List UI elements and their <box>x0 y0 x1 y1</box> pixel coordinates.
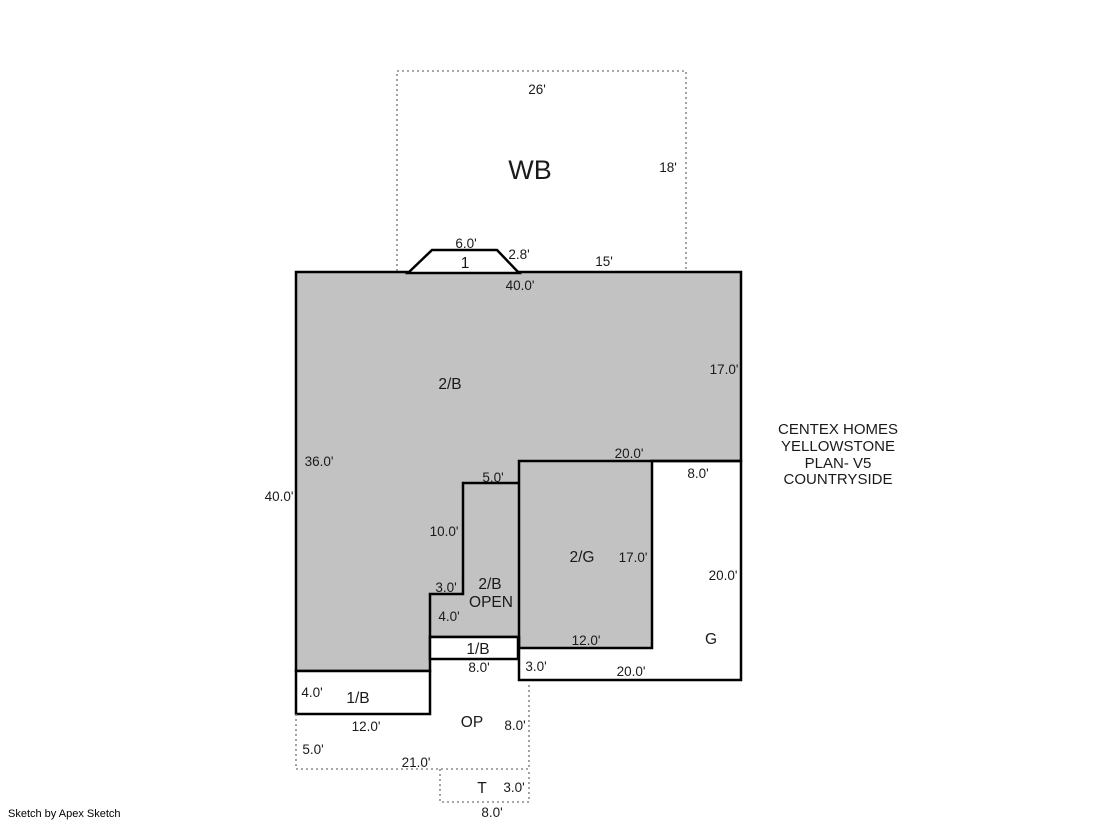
open-area-label-line1: 2/B <box>478 576 501 593</box>
terrace-dim-bottom: 8.0' <box>481 805 502 820</box>
garage-area-label: G <box>705 631 717 648</box>
upper-garage-area-label: 2/G <box>570 549 595 566</box>
floorplan-sketch: 26' WB 18' 6.0' 1 2.8' 15' 40.0' 2/B 17.… <box>0 0 1119 821</box>
lower-1b-area-label: 1/B <box>346 690 369 707</box>
plan-annotation-line1: CENTEX HOMES <box>778 421 898 438</box>
open-dim-step-h: 3.0' <box>435 580 456 595</box>
garage-dim-bottom: 20.0' <box>617 664 646 679</box>
main-dim-top-right: 15' <box>595 254 613 269</box>
terrace-dim-right: 3.0' <box>503 780 524 795</box>
stoop-area-label: 1 <box>461 255 470 272</box>
main-area-label: 2/B <box>438 376 461 393</box>
strip-1b-area-label: 1/B <box>466 641 489 658</box>
wb-area-label: WB <box>508 155 552 185</box>
porch-dim-right: 8.0' <box>504 718 525 733</box>
lower-1b-dim-left: 4.0' <box>301 685 322 700</box>
upper-garage-dim-bottom: 12.0' <box>572 633 601 648</box>
open-area-label-line2: OPEN <box>469 594 513 611</box>
garage-dim-left: 3.0' <box>525 659 546 674</box>
floorplan-canvas: 26' WB 18' 6.0' 1 2.8' 15' 40.0' 2/B 17.… <box>0 0 1119 821</box>
wb-dim-right: 18' <box>659 160 677 175</box>
main-dim-right: 17.0' <box>710 362 739 377</box>
main-dim-top: 40.0' <box>506 278 535 293</box>
porch-area-label: OP <box>461 714 483 731</box>
main-dim-left-outer: 40.0' <box>265 489 294 504</box>
open-dim-top: 5.0' <box>482 470 503 485</box>
sketch-credit: Sketch by Apex Sketch <box>8 808 121 820</box>
main-dim-left-inner: 36.0' <box>305 454 334 469</box>
garage-dim-right: 20.0' <box>709 568 738 583</box>
plan-annotation-line2: YELLOWSTONE <box>781 438 895 455</box>
open-dim-step-v: 4.0' <box>438 609 459 624</box>
wb-dim-top: 26' <box>528 82 546 97</box>
stoop-dim-top: 6.0' <box>455 236 476 251</box>
garage-dim-top: 8.0' <box>687 466 708 481</box>
plan-annotation-line3: PLAN- V5 <box>805 455 872 472</box>
terrace-area-label: T <box>477 780 487 797</box>
lower-1b-dim-bottom: 12.0' <box>352 719 381 734</box>
porch-dim-left: 5.0' <box>302 742 323 757</box>
plan-annotation-line4: COUNTRYSIDE <box>784 471 893 488</box>
upper-garage-dim-top: 20.0' <box>615 446 644 461</box>
porch-dim-bottom: 21.0' <box>402 755 431 770</box>
upper-garage-dim-right: 17.0' <box>619 550 648 565</box>
stoop-dim-slope: 2.8' <box>508 247 529 262</box>
open-dim-left: 10.0' <box>430 524 459 539</box>
strip-1b-dim-bottom: 8.0' <box>468 660 489 675</box>
